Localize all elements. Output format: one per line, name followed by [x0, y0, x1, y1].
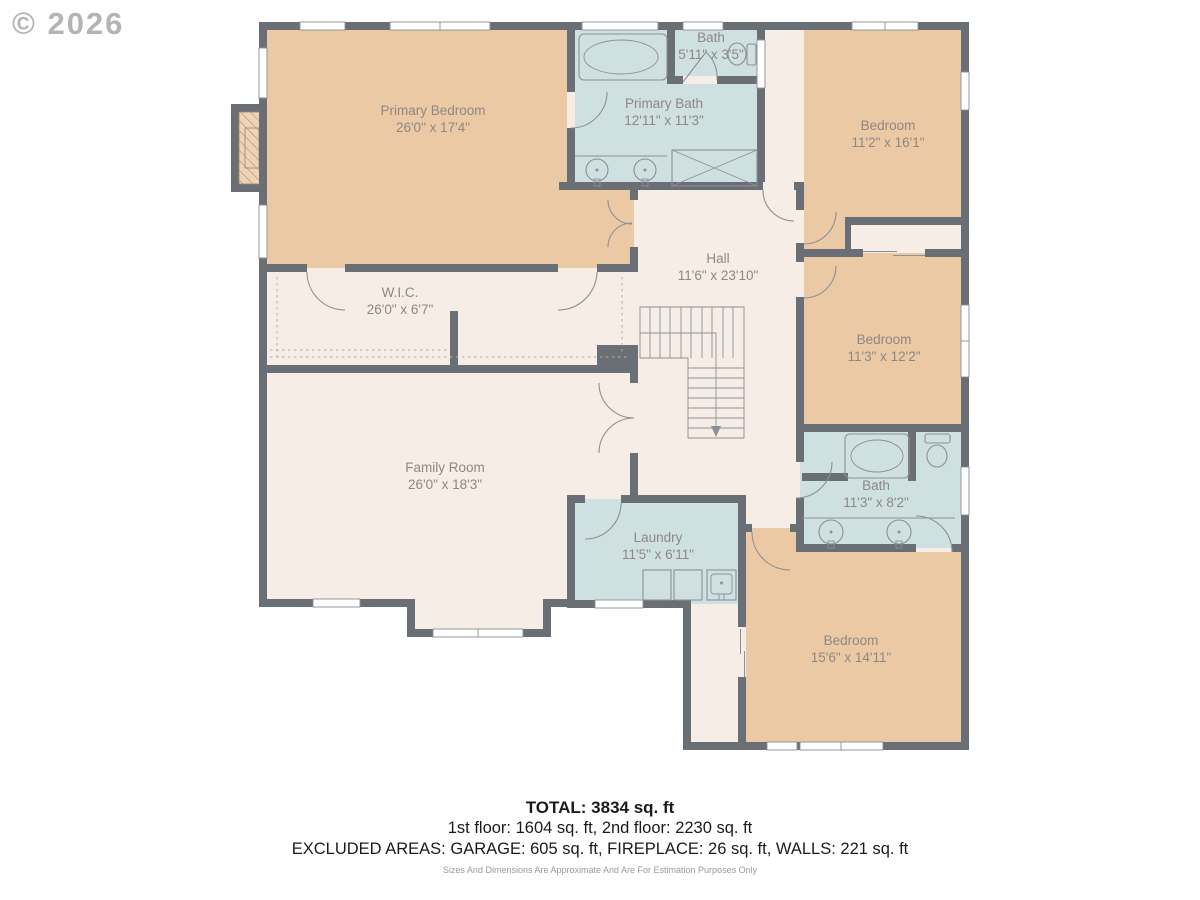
window-icon: [300, 22, 345, 30]
window-icon: [259, 48, 267, 98]
room-label-family-room: Family Room 26'0" x 18'3": [405, 459, 485, 493]
disclaimer-text: Sizes And Dimensions Are Approximate And…: [0, 865, 1200, 875]
room-label-wic: W.I.C. 26'0" x 6'7": [367, 284, 434, 318]
room-name: Primary Bath: [624, 95, 704, 112]
room-name: Primary Bedroom: [380, 102, 485, 119]
window-icon: [800, 742, 883, 750]
room-label-bedroom-3: Bedroom 15'6" x 14'11": [811, 632, 892, 666]
room-dims: 15'6" x 14'11": [811, 649, 892, 666]
room-label-bath-small: Bath 5'11" x 3'5": [678, 29, 744, 63]
room-dims: 5'11" x 3'5": [678, 46, 744, 63]
room-dims: 11'5" x 6'11": [622, 546, 694, 563]
room-dims: 11'3" x 8'2": [843, 494, 909, 511]
room-label-hall: Hall 11'6" x 23'10": [678, 250, 759, 284]
room-label-primary-bath: Primary Bath 12'11" x 11'3": [624, 95, 704, 129]
floor-areas-text: 1st floor: 1604 sq. ft, 2nd floor: 2230 …: [0, 818, 1200, 839]
room-name: Family Room: [405, 459, 485, 476]
floor-plan-drawing: [0, 0, 1200, 780]
room-dims: 11'6" x 23'10": [678, 267, 759, 284]
room-label-bedroom-2: Bedroom 11'3" x 12'2": [847, 331, 920, 365]
window-icon: [961, 72, 969, 110]
excluded-areas-text: EXCLUDED AREAS: GARAGE: 605 sq. ft, FIRE…: [0, 839, 1200, 860]
window-icon: [767, 742, 797, 750]
room-name: Bedroom: [847, 331, 920, 348]
room-label-primary-bedroom: Primary Bedroom 26'0" x 17'4": [380, 102, 485, 136]
area-summary: TOTAL: 3834 sq. ft 1st floor: 1604 sq. f…: [0, 797, 1200, 875]
room-name: W.I.C.: [367, 284, 434, 301]
room-dims: 11'2" x 16'1": [851, 134, 924, 151]
room-dims: 12'11" x 11'3": [624, 112, 704, 129]
room-label-laundry: Laundry 11'5" x 6'11": [622, 529, 694, 563]
window-icon: [595, 600, 643, 608]
window-icon: [313, 599, 360, 607]
room-name: Laundry: [622, 529, 694, 546]
total-area-text: TOTAL: 3834 sq. ft: [0, 797, 1200, 818]
floor-plan-page: © 2026: [0, 0, 1200, 900]
window-icon: [259, 205, 267, 258]
room-dims: 26'0" x 18'3": [405, 476, 485, 493]
closet-opening: [757, 40, 765, 88]
room-name: Bedroom: [811, 632, 892, 649]
room-dims: 11'3" x 12'2": [847, 348, 920, 365]
room-dims: 26'0" x 6'7": [367, 301, 434, 318]
room-name: Bath: [843, 477, 909, 494]
room-name: Hall: [678, 250, 759, 267]
room-label-bath-2: Bath 11'3" x 8'2": [843, 477, 909, 511]
window-icon: [582, 22, 658, 30]
room-label-bedroom-1: Bedroom 11'2" x 16'1": [851, 117, 924, 151]
window-icon: [961, 467, 969, 515]
room-name: Bedroom: [851, 117, 924, 134]
room-dims: 26'0" x 17'4": [380, 119, 485, 136]
room-name: Bath: [678, 29, 744, 46]
